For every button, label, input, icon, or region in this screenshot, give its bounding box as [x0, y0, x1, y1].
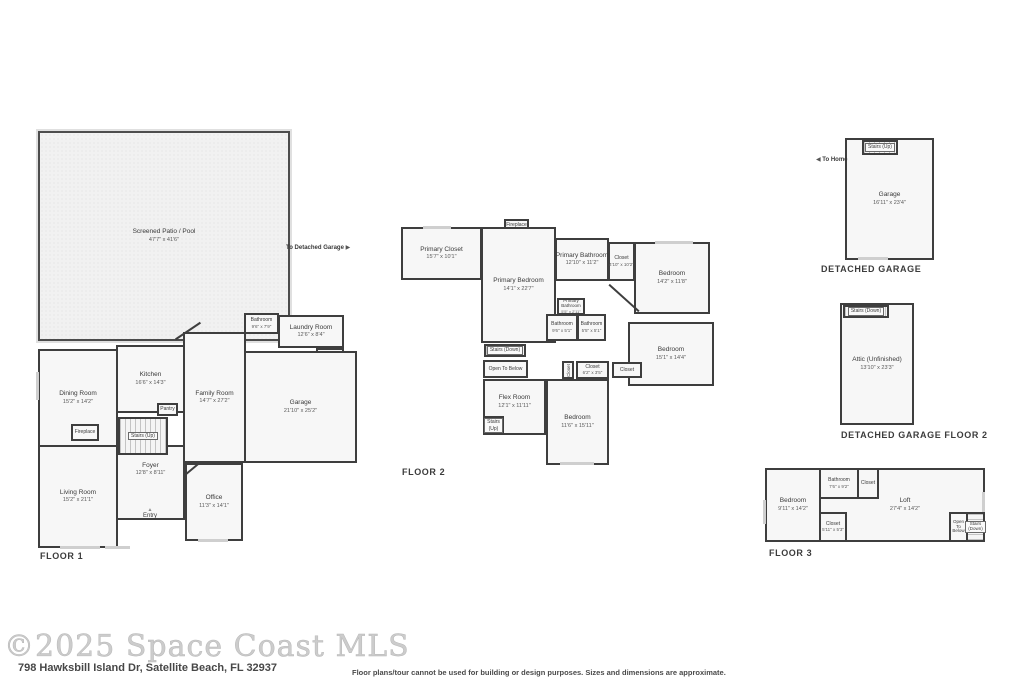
window	[858, 257, 888, 260]
stairs-down-garage-floor2: Stairs (Down)	[843, 305, 889, 318]
room-label: Attic (Unfinished)	[852, 356, 902, 364]
room-attic-garage-floor2: Attic (Unfinished) 13'10" x 23'3"	[840, 303, 914, 425]
room-dims: 21'10" x 25'2"	[284, 408, 317, 415]
room-label: Stairs (Down)	[848, 307, 884, 316]
floor1-caption: FLOOR 1	[40, 551, 83, 561]
room-label: Loft	[900, 497, 911, 505]
room-closet-a-floor2: Closet 4'10" x 10'2"	[608, 242, 635, 281]
room-primary-bathroom-small-floor2: Primary Bathroom 5'5" x 2'11"	[557, 298, 585, 315]
window	[763, 500, 766, 524]
room-label: Closet	[566, 364, 571, 377]
entry-marker: ▲ Entry	[138, 508, 162, 519]
room-dims: 12'1" x 11'11"	[498, 403, 530, 410]
room-dims: 4'10" x 10'2"	[609, 262, 634, 268]
window	[560, 462, 594, 465]
room-label: Living Room	[60, 489, 96, 497]
floor3-caption: FLOOR 3	[769, 548, 812, 558]
stairs-up-floor2: Stairs (Up)	[483, 416, 504, 435]
room-primary-bathroom-floor2: Primary Bathroom 12'10" x 11'2"	[555, 238, 609, 281]
room-closet-top-floor3: Closet	[857, 468, 879, 499]
room-primary-bedroom-floor2: Primary Bedroom 14'1" x 22'7"	[481, 227, 556, 343]
room-office-floor1: Office 11'3" x 14'1"	[185, 463, 243, 541]
room-dims: 9'11" x 14'2"	[778, 506, 808, 513]
room-detached-garage: Garage 16'11" x 23'4"	[845, 138, 934, 260]
room-dims: 15'1" x 14'4"	[656, 355, 686, 362]
room-bedroom-a-floor2: Bedroom 14'2" x 11'8"	[634, 242, 710, 314]
room-label: Flex Room	[499, 394, 530, 402]
room-laundry-floor1: Laundry Room 12'6" x 8'4"	[278, 315, 344, 348]
detached-garage-caption: DETACHED GARAGE	[821, 264, 921, 274]
detached-garage-floor2-caption: DETACHED GARAGE FLOOR 2	[841, 430, 988, 440]
room-bedroom-c-floor2: Bedroom 11'6" x 15'11"	[546, 379, 609, 465]
room-dims: 7'6" x 9'2"	[829, 484, 849, 490]
room-label: Pantry	[160, 406, 174, 413]
room-dims: 14'1" x 22'7"	[503, 286, 533, 293]
room-dims: 12'10" x 11'2"	[566, 260, 599, 267]
room-dims: 14'2" x 11'8"	[657, 279, 687, 286]
room-label: Primary Bathroom	[556, 252, 608, 260]
window	[60, 546, 100, 549]
room-bedroom-floor3: Bedroom 9'11" x 14'2"	[765, 468, 821, 542]
room-label: Dining Room	[59, 390, 97, 398]
window	[423, 226, 451, 229]
stairs-down-floor2: Stairs (Down)	[484, 344, 526, 357]
room-primary-closet-floor2: Primary Closet 15'7" x 10'1"	[401, 227, 482, 280]
room-label: Garage	[290, 399, 312, 407]
room-garage-floor1: Garage 21'10" x 25'2"	[244, 351, 357, 463]
room-dims: 16'11" x 23'4"	[873, 200, 906, 207]
room-label: Bedroom	[780, 497, 806, 505]
room-pantry-floor1: Pantry	[157, 403, 178, 416]
arrow-left-icon: ◀	[816, 157, 821, 163]
room-dims: 5'5" x 5'1"	[582, 328, 602, 334]
room-label: Bedroom	[564, 414, 590, 422]
window	[982, 492, 985, 512]
room-label: Primary Bedroom	[493, 277, 544, 285]
room-dims: 16'6" x 14'3"	[135, 380, 165, 387]
room-label: Fireplace	[75, 429, 96, 436]
floor2-caption: FLOOR 2	[402, 467, 445, 477]
room-dims: 12'8" x 8'11"	[136, 470, 166, 477]
room-dims: 15'7" x 10'1"	[426, 254, 456, 261]
floor-plan-canvas: Screened Patio / Pool 47'7" x 41'6" To D…	[0, 0, 1024, 683]
room-label: Office	[206, 494, 223, 502]
room-label: Stairs (Down)	[965, 521, 986, 533]
room-bathroom-floor3: Bathroom 7'6" x 9'2"	[819, 468, 859, 499]
room-dims: 27'4" x 14'2"	[890, 506, 920, 513]
room-label: Stairs (Up)	[865, 143, 895, 152]
window	[105, 546, 130, 549]
room-label: Closet	[620, 367, 634, 374]
room-label: Stairs (Up)	[484, 418, 503, 433]
arrow-right-icon: ▶	[346, 245, 351, 251]
property-address: 798 Hawksbill Island Dr, Satellite Beach…	[18, 662, 277, 674]
stairs-up-detached-garage: Stairs (Up)	[862, 140, 898, 155]
room-label: Bedroom	[659, 270, 685, 278]
open-to-below-floor2: Open To Below	[483, 360, 528, 378]
mls-watermark: ©2025 Space Coast MLS	[4, 629, 410, 664]
stairs-down-floor3: Stairs (Down)	[966, 512, 985, 542]
room-label: Closet	[861, 480, 875, 487]
room-label: Kitchen	[140, 371, 162, 379]
to-home-label: ◀ To Home	[816, 156, 848, 163]
entry-label: Entry	[143, 513, 157, 519]
room-dims: 9'6" x 5'1"	[552, 328, 572, 334]
room-label: Laundry Room	[290, 324, 333, 332]
room-dims: 15'2" x 21'1"	[63, 497, 93, 504]
room-closet-b-floor2: Closet 6'2" x 3'5"	[576, 361, 609, 379]
room-label: Foyer	[142, 462, 159, 470]
room-dims: 9'6" x 7'9"	[252, 324, 272, 330]
room-label: Screened Patio / Pool	[133, 228, 196, 236]
room-closet-c-floor2: Closet	[612, 362, 642, 378]
room-label: Stairs (Down)	[487, 346, 523, 355]
room-dims: 11'6" x 15'11"	[561, 423, 593, 430]
room-label: Bedroom	[658, 346, 684, 354]
fireplace-floor1: Fireplace	[71, 424, 99, 441]
window	[198, 539, 228, 542]
room-dims: 5'11" x 5'3"	[822, 527, 844, 533]
room-label: Family Room	[195, 390, 233, 398]
room-label: Garage	[879, 191, 901, 199]
room-closet-v-floor2: Closet	[562, 361, 574, 379]
stairs-up-floor1: Stairs (Up)	[118, 417, 168, 455]
room-dims: 47'7" x 41'6"	[149, 237, 179, 244]
disclaimer-text: Floor plans/tour cannot be used for buil…	[352, 668, 726, 677]
room-label: Open To Below	[489, 366, 523, 373]
room-dims: 12'6" x 8'4"	[297, 332, 324, 339]
room-bathroom-b-floor2: Bathroom 5'5" x 5'1"	[577, 314, 606, 341]
room-family-floor1: Family Room 14'7" x 27'2"	[183, 332, 246, 463]
room-dims: 11'3" x 14'1"	[199, 503, 229, 510]
room-label: Stairs (Up)	[128, 432, 158, 441]
room-dims: 14'7" x 27'2"	[199, 398, 229, 405]
window	[36, 372, 39, 400]
room-bathroom-a-floor2: Bathroom 9'6" x 5'1"	[546, 314, 578, 341]
room-label: Primary Closet	[420, 246, 463, 254]
room-label: Open To Below	[951, 520, 966, 535]
room-dims: 13'10" x 23'3"	[860, 365, 893, 372]
window	[655, 241, 693, 244]
room-bathroom-floor1: Bathroom 9'6" x 7'9"	[244, 313, 279, 334]
room-label: Primary Bathroom	[559, 299, 583, 309]
room-dims: 6'2" x 3'5"	[583, 370, 603, 376]
to-detached-garage-label: To Detached Garage ▶	[286, 244, 350, 251]
room-living-floor1: Living Room 15'2" x 21'1"	[38, 445, 118, 548]
room-screened-patio-pool: Screened Patio / Pool 47'7" x 41'6"	[38, 131, 290, 341]
room-closet-bottom-floor3: Closet 5'11" x 5'3"	[819, 512, 847, 542]
room-dims: 15'2" x 14'2"	[63, 399, 93, 406]
